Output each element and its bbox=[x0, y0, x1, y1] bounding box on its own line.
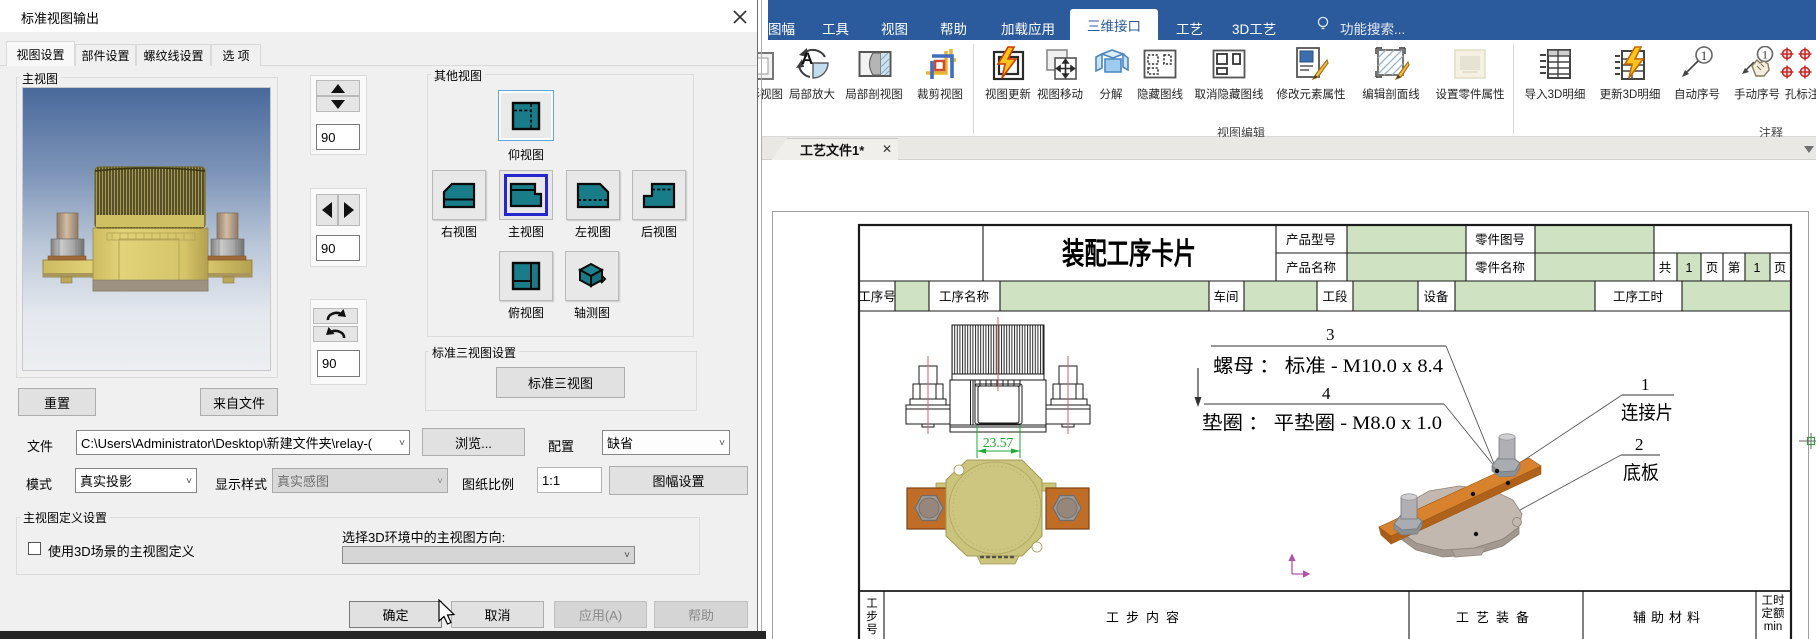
svg-text:2: 2 bbox=[1635, 435, 1644, 454]
svg-text:工序工时: 工序工时 bbox=[1613, 289, 1664, 304]
svg-text:页: 页 bbox=[1706, 261, 1719, 275]
svg-text:第: 第 bbox=[1728, 261, 1741, 275]
svg-text:步: 步 bbox=[866, 610, 878, 623]
svg-text:辅助材料: 辅助材料 bbox=[1633, 610, 1705, 625]
svg-text:底板: 底板 bbox=[1623, 462, 1659, 484]
svg-text:工艺装备: 工艺装备 bbox=[1456, 610, 1536, 625]
svg-text:车间: 车间 bbox=[1213, 289, 1238, 304]
svg-text:工: 工 bbox=[866, 598, 878, 610]
svg-text:工步内容: 工步内容 bbox=[1106, 610, 1186, 625]
svg-text:工序名称: 工序名称 bbox=[939, 289, 989, 304]
svg-text:工序号: 工序号 bbox=[858, 289, 896, 304]
svg-text:页: 页 bbox=[1774, 261, 1787, 275]
svg-text:连接片: 连接片 bbox=[1621, 402, 1673, 424]
svg-text:1: 1 bbox=[1762, 48, 1768, 62]
svg-text:共: 共 bbox=[1659, 261, 1672, 275]
svg-text:设备: 设备 bbox=[1423, 289, 1449, 304]
svg-text:min: min bbox=[1764, 621, 1783, 633]
svg-text:零件图号: 零件图号 bbox=[1475, 233, 1525, 247]
svg-text:4: 4 bbox=[1322, 384, 1331, 403]
svg-text:产品型号: 产品型号 bbox=[1286, 233, 1336, 247]
svg-text:螺母 ： 标准 - M10.0 x 8.4: 螺母 ： 标准 - M10.0 x 8.4 bbox=[1213, 355, 1444, 377]
svg-text:工段: 工段 bbox=[1322, 289, 1347, 304]
svg-text:1: 1 bbox=[1686, 261, 1693, 275]
svg-text:1: 1 bbox=[1754, 261, 1761, 275]
svg-text:号: 号 bbox=[866, 623, 878, 636]
svg-text:A: A bbox=[801, 49, 813, 68]
svg-text:装配工序卡片: 装配工序卡片 bbox=[1062, 237, 1196, 271]
svg-text:定额: 定额 bbox=[1762, 606, 1785, 620]
svg-text:工时: 工时 bbox=[1762, 594, 1785, 607]
svg-text:1: 1 bbox=[1641, 375, 1650, 394]
svg-text:3: 3 bbox=[1326, 325, 1335, 344]
svg-text:1: 1 bbox=[1701, 48, 1708, 63]
svg-text:23.57: 23.57 bbox=[983, 435, 1014, 450]
svg-text:产品名称: 产品名称 bbox=[1286, 260, 1336, 275]
svg-text:垫圈 ： 平垫圈 - M8.0 x 1.0: 垫圈 ： 平垫圈 - M8.0 x 1.0 bbox=[1202, 412, 1442, 434]
svg-text:零件名称: 零件名称 bbox=[1475, 260, 1525, 275]
